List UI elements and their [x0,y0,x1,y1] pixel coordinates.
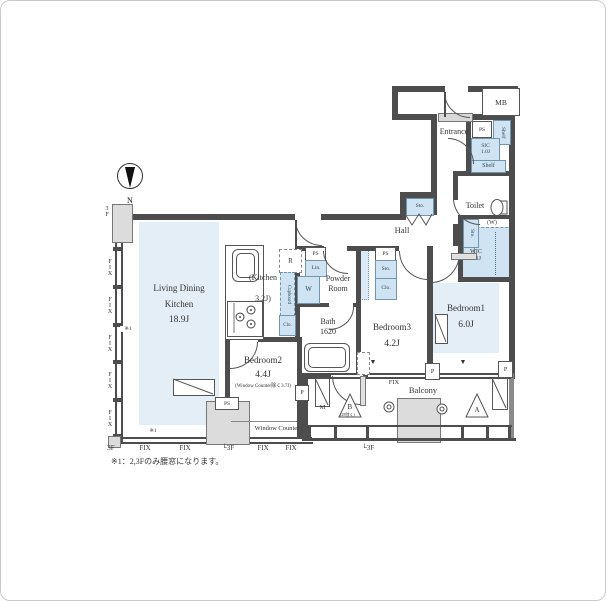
floor3-balcony-label: └3F [355,445,381,453]
railing-top [308,425,512,427]
storage-bedroom3: Sto. [375,260,397,279]
bedroom1-furniture-diagonal [435,314,446,342]
floor3-left-label: 3F [100,200,110,224]
mullion-tick [113,398,122,402]
down-arrow: ▼ [370,358,377,366]
clo-label: Clo. [381,286,390,292]
bedroom3-size: 4.2J [371,339,413,349]
bedroom3-door-arc [399,251,428,280]
bedroom1-size-text: 6.0J [458,320,474,330]
ps-shaft-label: PS [215,397,239,410]
mullion-tick [113,247,122,251]
fix-text: FIX [139,444,150,452]
fix-text: FIX [107,410,113,428]
mb-label: MB [495,98,507,107]
powder-label2: Room [319,285,357,294]
floor3-corner-text: └3F [222,444,234,452]
bedroom3-label: Bedroom3 [363,323,421,333]
fix-text: FIX [107,372,113,390]
fix-left-label: FIX [103,292,113,320]
pillar-marker-bedroom2: P [295,385,309,401]
sic-size: 1.0J [481,150,490,156]
entrance-door-leaf [444,92,446,117]
ref-mark-bottom: ※1 [145,428,161,434]
lin-label: Lin. [311,266,320,272]
fix-text: FIX [107,259,113,277]
kitchen-size: 3.2J) [241,295,285,304]
window-marker-bedroom3: ▼ [367,359,379,367]
fix-left-label: FIX [103,330,113,358]
kitchen-label: (Kitchen [237,274,289,283]
hall-label: Hall [387,226,417,235]
fix-left-label: FIX [103,367,113,395]
wall-top-ldk-left [116,214,295,220]
floor3-bottom-left: 3F [103,445,119,453]
fix-bottom-label: FIX [173,445,197,453]
ps-label: PS [382,251,388,257]
window-counter-line [231,421,297,422]
fix-left-label: FIX [103,405,113,433]
floor3-bottom-center: └3F [215,445,241,453]
wall-corridor-right-a [453,171,458,200]
bedroom2-note-text: (Window Counter除く3.7J) [235,384,291,389]
sto-label: Sto. [382,267,391,273]
bath-name: Bath [320,317,335,326]
w-paren-text: (W) [487,220,497,226]
fix-text: FIX [107,335,113,353]
window-counter-text: Window Counter [255,425,300,432]
balcony-label: Balcony [401,386,445,395]
wall-alcove-bottom [398,114,437,120]
ref-mark-wall: ※1 [120,326,136,332]
fix-bottom-label: FIX [133,445,157,453]
ldk-line1: Living Dining [153,283,204,293]
mullion-tick [113,360,122,364]
fix-left-label: FIX [103,254,113,282]
ref-text: ※1 [149,428,156,434]
fix-bottom-label: FIX [251,445,275,453]
fix-text: FIX [389,379,399,386]
stove-burners-icon [227,301,261,335]
shelf-label: Shelf [499,127,505,139]
balcony-shaft [397,398,441,443]
ldk-size: 18.9J [141,315,217,325]
ldk-size-text: 18.9J [169,315,189,325]
bedroom2-size: 4.4J [241,370,285,380]
wall-entrance-left [431,114,437,194]
bedroom2-label: Bedroom2 [233,356,293,366]
cupboard-label: Cupboard [285,285,290,304]
kitchen-line1: (Kitchen [249,273,277,282]
p-text: P [504,367,507,373]
tri-a-label: A [475,406,480,414]
floor3-text: 3F [107,444,114,452]
bedroom2-note: (Window Counter除く3.7J) [221,384,305,390]
tri-b-label: B [348,403,353,411]
ps-bedroom3: PS [375,247,396,261]
meter-text: M [320,404,326,411]
pillar-top-left [112,204,133,243]
railing-post [308,425,311,438]
closet-kitchen: Clo. [279,315,296,336]
bedroom3-size-text: 4.2J [384,339,400,349]
pillar-marker-balcony-right: P [498,361,513,378]
wic-hanger-pipe [495,232,496,275]
bedroom1-name: Bedroom1 [447,303,485,313]
railing-post [366,425,369,438]
fix-bottom-label: FIX [279,445,303,453]
down-arrow: ▼ [460,358,467,366]
floor3-text: 3F [104,206,110,218]
bathtub-inner [308,347,346,368]
fridge-label: R [288,257,293,265]
meter-box: MB [482,88,520,116]
balcony-drain-icon [383,401,395,413]
kitchen-line2: 3.2J) [255,294,271,303]
refrigerator-space: R [279,249,302,273]
railing-bottom [304,438,516,441]
ldk-door-leaf [295,220,297,246]
footnote: ※1：2,3Fのみ腰窓になります。 [111,458,351,467]
bedroom1-label: Bedroom1 [438,304,494,314]
fix-text: FIX [257,444,268,452]
railing-post [508,425,511,438]
balcony-text: Balcony [409,385,437,395]
tri-b-note: (2F除く) [340,411,356,417]
ldk-label2: Kitchen [141,300,217,310]
north-compass-icon: N [115,161,149,207]
balcony-drain-icon [436,403,448,415]
fix-text: FIX [285,444,296,452]
north-label: N [127,196,133,205]
wall-wic-bottom [458,277,511,282]
footnote-text: ※1：2,3Fのみ腰窓になります。 [111,457,223,466]
ps-entrance: PS [472,121,492,138]
fix-text: FIX [179,444,190,452]
wall-top-hall [321,214,406,220]
bath-label: Bath [311,318,345,327]
wall-top-outer-left [392,86,445,92]
bedroom1-size: 6.0J [445,320,487,330]
fix-balcony-label: FIX [383,379,405,386]
window-marker-bedroom1: ▼ [457,359,469,367]
clo-label: Clo. [283,323,291,328]
powder-line1: Powder [326,274,350,283]
washer-label: W [305,286,312,293]
sto-label: Sto. [416,204,425,210]
powder-line2: Room [328,284,348,293]
meter-label: M [316,404,329,411]
ldk-line2: Kitchen [165,299,194,309]
sto-label: Sto. [468,229,474,238]
floorplan: PS MB PS Shelf SIC 1.0J Shelf Toilet Sto… [0,0,606,601]
balcony-panel-left-diagonal [315,378,328,405]
bedroom1-door-leaf [451,253,477,260]
hatch-b-icon: B (2F除く) [337,392,363,420]
fix-text: FIX [107,297,113,315]
sic-closet: SIC 1.0J [471,138,500,162]
bath-size-text: 1620 [320,327,336,336]
closet-bedroom3: Clo. [375,278,397,300]
toilet-bowl-icon [489,198,511,220]
p-text: P [431,369,434,375]
window-counter-label: Window Counter [249,425,305,432]
railing-post [334,425,337,438]
pillar-marker-balcony-left: P [425,363,440,380]
bath-size: 1620 [311,328,345,337]
ldk-counter-diagonal [173,379,213,394]
bedroom2-name: Bedroom2 [244,355,282,365]
floor3-corner-text: └3F [362,444,374,452]
ldk-label: Living Dining [141,284,217,294]
ps-label: PS [479,127,485,133]
railing-post [461,425,464,438]
window-w-label: (W) [483,220,501,227]
shelf-horizontal: Shelf [471,160,506,173]
mullion-tick [113,285,122,289]
entrance-label: Entrance [435,128,473,137]
hall-text: Hall [395,225,410,235]
balcony-panel-right-diagonal [492,378,506,408]
ref-text: ※1 [124,326,131,332]
ldk-door-arc [295,220,322,246]
bedroom2-size-text: 4.4J [255,370,271,380]
bedroom3-name: Bedroom3 [373,322,411,332]
p-text: P [300,390,303,396]
hatch-a-icon: A [464,392,490,420]
entrance-text: Entrance [440,127,468,136]
ps-label: PS [312,251,318,257]
shelf-label: Shelf [482,163,495,169]
railing-post [486,425,489,438]
ps-label: PS [224,401,230,407]
powder-label: Powder [315,275,361,284]
